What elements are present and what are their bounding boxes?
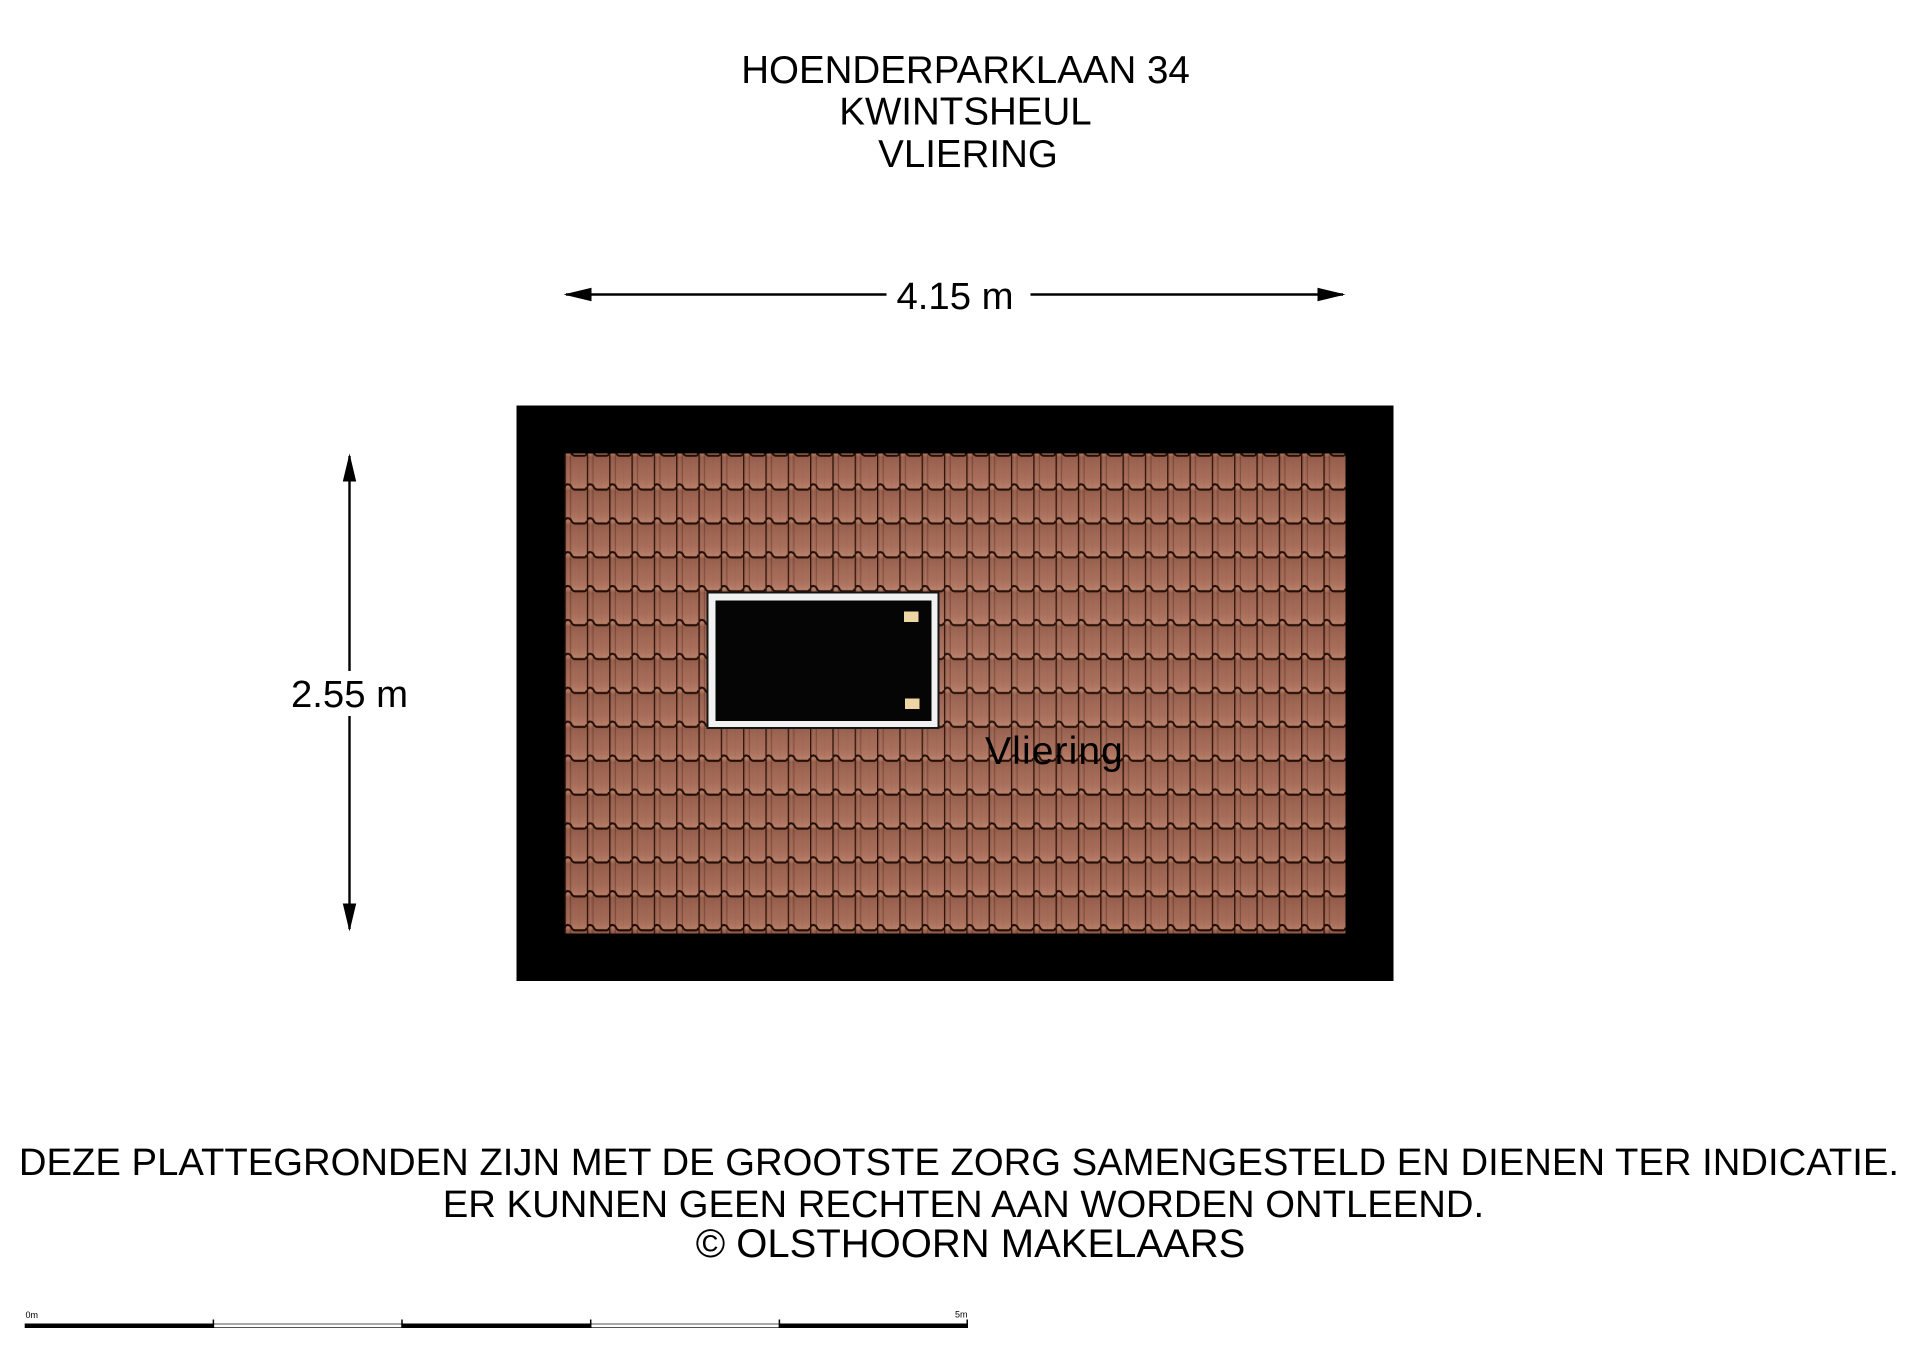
svg-text:Vliering: Vliering — [985, 730, 1124, 773]
svg-text:KWINTSHEUL: KWINTSHEUL — [839, 91, 1091, 134]
svg-text:VLIERING: VLIERING — [878, 133, 1058, 176]
svg-text:5m: 5m — [955, 1310, 968, 1320]
svg-text:4.15 m: 4.15 m — [896, 275, 1013, 318]
svg-text:ER KUNNEN GEEN RECHTEN AAN WOR: ER KUNNEN GEEN RECHTEN AAN WORDEN ONTLEE… — [443, 1183, 1484, 1226]
svg-text:HOENDERPARKLAAN 34: HOENDERPARKLAAN 34 — [741, 49, 1190, 92]
svg-text:© OLSTHOORN MAKELAARS: © OLSTHOORN MAKELAARS — [696, 1222, 1246, 1266]
svg-text:DEZE PLATTEGRONDEN ZIJN MET DE: DEZE PLATTEGRONDEN ZIJN MET DE GROOTSTE … — [19, 1141, 1899, 1184]
svg-text:2.55 m: 2.55 m — [291, 673, 408, 716]
svg-text:0m: 0m — [26, 1310, 39, 1320]
